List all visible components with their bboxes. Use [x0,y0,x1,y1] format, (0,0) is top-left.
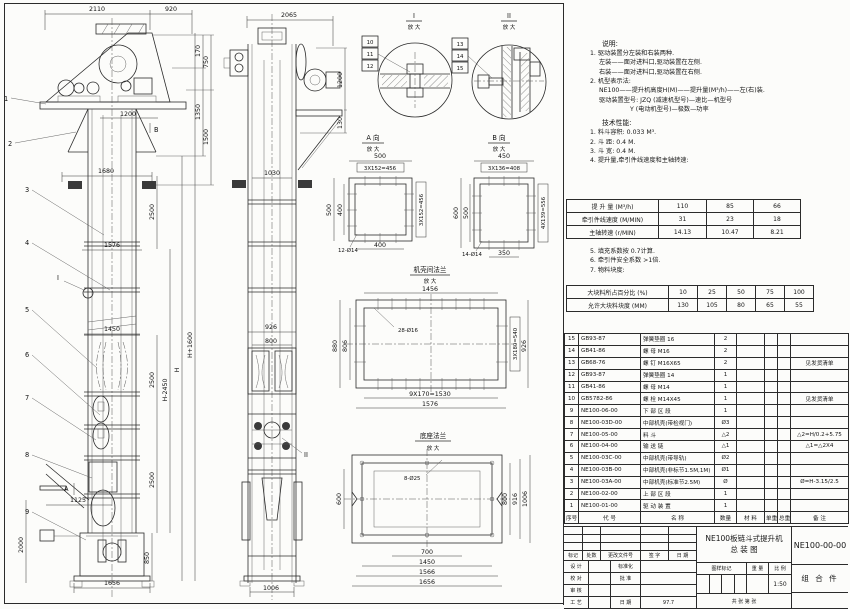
bom-table: 15GB93-87弹簧垫圈 162 14GB41-86螺 母 M162 13GB… [564,333,849,524]
note-line: NE100——提升机高度H(M)——提升量(M³/h)——左(右)装. [590,86,842,95]
dim-750: 750 [203,56,210,68]
front-view: 2110 920 [4,6,214,598]
detail-ii-balloon-15: 15 [457,66,464,72]
bom-row: 2NE100-02-00上 部 区 段1 [565,488,849,500]
speed-table: 提 升 量 (M³/h) 110 85 66 牵引件线速度 (M/MIN) 31… [566,199,801,239]
dim-920: 920 [165,6,177,13]
balloon-4: 4 [25,239,29,247]
dim-1030: 1030 [264,170,280,177]
dim-130: 130 [337,117,344,129]
detail-ii-title: II [507,12,511,20]
lump-cell: 65 [756,299,785,312]
view-b-holes: 14-Ø14 [462,251,482,258]
tb-rev-label: 更改文件号 [600,551,640,561]
note-line: 1. 驱动装置分左装和右装两种. [590,49,842,58]
view-b: B 向 放 大 450 3X136=408 600 500 4X139=556 … [453,133,548,258]
bom-row: 14GB41-86螺 母 M162 [565,345,849,357]
balloon-7: 7 [25,394,29,402]
base-flange-dim-b1: 700 [421,549,433,556]
casing-flange-dim-right2: 926 [521,340,528,352]
product-title-line2: 总 装 图 [730,545,757,555]
speed-cell: 8.21 [754,226,801,239]
section-marker-b: B [154,126,159,134]
speed-row-label: 主轴转速 (r/MIN) [567,226,659,239]
dim-1125: 1125 [70,497,86,504]
balloon-8: 8 [25,451,29,459]
tb-role-val [640,585,696,597]
speed-cell: 14.13 [659,226,707,239]
view-a-dim-left: 500 [326,204,333,216]
base-flange-dim-right2: 916 [512,493,519,505]
tb-scale-value: 1:50 [768,575,791,594]
dim-1200-side: 1200 [337,72,344,88]
detail-i-sub: 放 大 [408,23,421,31]
view-a-dim-bottom: 400 [374,242,386,249]
speed-cell: 18 [754,213,801,226]
view-a-dim-left2: 400 [337,204,344,216]
detail-ii-balloon-13: 13 [457,42,464,48]
tech-item: 6. 牵引件安全系数 >1倍. [590,256,842,265]
dim-1500: 1500 [203,129,210,145]
bom-row: 7NE100-05-00料 斗△2△2=H/0.2+5.75 [565,429,849,441]
lump-cell: 80 [727,299,756,312]
tb-stamp-label: 重 量 [746,563,768,575]
tb-role-val [640,573,696,585]
right-panel: 说明: 1. 驱动装置分左装和右装两种. 左装——面对进料口,驱动装置在左侧. … [563,3,847,605]
speed-cell: 31 [659,213,707,226]
dim-1350: 1350 [195,104,202,120]
tb-role-val: 97.7 [640,597,696,609]
bom-row: 11GB41-86螺 母 M141 [565,381,849,393]
detail-i-ref: I [57,274,59,282]
lump-cell: 25 [698,286,727,299]
base-flange-dim-right1: 800 [502,493,509,505]
bom-row: 13GB68-76螺 钉 M16X652见发货清单 [565,357,849,369]
detail-i-view: I 放 大 10 11 12 [362,12,452,117]
tb-part-category: 组 合 件 [791,565,848,593]
lump-size-table: 大块料所占百分比 (%) 10 25 50 75 100 允许大块料块度 (MM… [566,285,814,312]
tech-item: 2. 斗 距: 0.4 M. [590,138,842,147]
detail-i-title: I [413,12,415,20]
base-flange-dim-left: 600 [336,493,343,505]
base-flange-dim-b4: 1656 [419,579,435,586]
lump-cell: 130 [669,299,698,312]
base-flange-holes: 8-Ø25 [404,475,420,482]
dim-2500-c: 2500 [149,472,156,488]
speed-cell: 10.47 [707,226,754,239]
base-flange-sub: 放 大 [427,444,440,452]
note-line: 2. 机型表示法: [590,77,842,86]
dim-1680: 1680 [98,168,114,175]
view-b-dim-right: 4X139=556 [541,196,547,229]
tb-sheet-info: 共 张 第 张 [696,594,791,609]
casing-flange-dim-left2: 806 [342,340,349,352]
view-b-dim-left: 600 [453,207,460,219]
drawing-area: 2110 920 [0,0,563,609]
dim-926: 926 [265,324,277,331]
bom-row: 15GB93-87弹簧垫圈 162 [565,334,849,346]
tb-drawing-number: NE100-00-00 [791,527,848,565]
speed-cell: 23 [707,213,754,226]
note-line: 驱动装置型号: JZQ (减速机型号)—速比—机型号 [590,96,842,105]
casing-flange-dim-right: 3X180=540 [513,327,519,360]
view-a-holes: 12-Ø14 [338,247,358,254]
balloon-2: 2 [8,140,12,148]
bom-row: 10GB5782-86螺 栓 M14X451见发货清单 [565,393,849,405]
tb-role2: 标准化 [610,561,640,573]
bom-row: 8NE100-03D-00中部机壳(带检视门)Ø3 [565,417,849,429]
detail-i-balloon-11: 11 [367,52,374,58]
detail-i-balloon-10: 10 [367,40,374,46]
tb-title: NE100板链斗式提升机 总 装 图 [696,527,791,563]
view-a-title: A 向 [366,133,379,142]
casing-flange-dim-bottom2: 1576 [422,401,438,408]
tech-item: 7. 物料块度: [590,266,842,275]
tb-role-val [640,561,696,573]
tb-rev-label: 处数 [582,551,600,561]
base-flange-title: 底座法兰 [420,431,447,440]
casing-flange-dim-left: 880 [332,340,339,352]
bom-row: 9NE100-06-00下 部 区 段1 [565,405,849,417]
view-b-dim-top: 450 [498,153,510,160]
dim-h-minus: H-2450 [162,378,169,401]
tech-item: 3. 斗 宽: 0.4 M. [590,147,842,156]
dim-170: 170 [195,45,202,57]
tech-item: 1. 料斗容积: 0.033 M³. [590,128,842,137]
view-b-dim-top2: 3X136=408 [488,166,521,172]
balloon-3: 3 [25,186,29,194]
detail-ii-balloon-14: 14 [457,54,464,60]
notes-block-2: 5. 填充系数按 0.7计算. 6. 牵引件安全系数 >1倍. 7. 物料块度: [590,247,842,275]
casing-flange-title: 机壳间法兰 [414,265,447,274]
dim-2500-a: 2500 [149,204,156,220]
dim-800: 800 [265,338,277,345]
note-line: 右装——面对进料口,驱动装置在右侧. [590,68,842,77]
tb-stamp-label: 比 例 [768,563,791,575]
view-b-sub: 放 大 [493,145,506,153]
notes-block: 说明: 1. 驱动装置分左装和右装两种. 左装——面对进料口,驱动装置在左侧. … [590,39,842,166]
view-b-dim-left2: 500 [463,207,470,219]
tb-role: 审 核 [564,585,588,597]
base-flange-view: 底座法兰 放 大 8-Ø25 600 800 916 1006 700 [336,431,530,586]
tb-role2: 日 期 [610,597,640,609]
dim-h-plus: H+1600 [187,332,194,358]
tb-role2: 批 准 [610,573,640,585]
dim-2000: 2000 [18,537,25,553]
bom-row: 3NE100-03A-00中部机壳(标准节2.5M)ØØ=H-3.15/2.5 [565,476,849,488]
casing-flange-dim-top: 1456 [422,286,438,293]
view-b-dim-bottom: 350 [498,250,510,257]
lump-row-label: 允许大块料块度 (MM) [567,299,669,312]
side-view: 2065 1200 130 10 [224,12,347,600]
tb-role: 工 艺 [564,597,588,609]
lump-cell: 100 [785,286,814,299]
casing-flange-dim-bottom: 9X170=1530 [409,391,451,398]
base-flange-dim-b3: 1566 [419,569,435,576]
note-line: Y (电动机型号)—极数—功率 [590,105,842,114]
bom-row: 6NE100-04-00输 送 链△1△1=△2X4 [565,441,849,453]
tb-rev-label: 标记 [564,551,582,561]
dim-1006: 1006 [263,585,279,592]
lump-cell: 50 [727,286,756,299]
tech-item: 4. 提升量,牵引件线速度和主轴转速: [590,156,842,165]
detail-i-balloon-12: 12 [367,64,374,70]
tb-role: 设 计 [564,561,588,573]
title-block: 标记 处数 更改文件号 签 字 日 期 设 计 标准化 校 对 批 准 审 核 … [564,526,848,608]
dim-h: H [174,367,181,372]
view-a-dim-top2: 3X152=456 [364,166,397,172]
dim-1576: 1576 [104,242,120,249]
dim-2110: 2110 [89,6,105,13]
speed-cell: 66 [754,200,801,213]
base-flange-dim-right3: 1006 [522,491,529,507]
bom-row: 12GB93-87弹簧垫圈 141 [565,369,849,381]
detail-ii-view: II 放 大 13 14 15 [452,12,546,119]
bom-row: 4NE100-03B-00中部机壳(非标节1.5M,1M)Ø1 [565,464,849,476]
view-a-sub: 放 大 [367,145,380,153]
balloon-6: 6 [25,351,29,359]
lump-cell: 55 [785,299,814,312]
tech-item: 5. 填充系数按 0.7计算. [590,247,842,256]
lump-cell: 75 [756,286,785,299]
speed-row-label: 牵引件线速度 (M/MIN) [567,213,659,226]
view-b-title: B 向 [492,133,505,142]
base-flange-dim-b2: 1450 [419,559,435,566]
dim-1656-front: 1656 [104,580,120,587]
bom-row: 1NE100-01-00驱 动 装 置1 [565,500,849,512]
dim-2500-b: 2500 [149,372,156,388]
view-a-dim-top: 500 [374,153,386,160]
bom-row: 5NE100-03C-00中部机壳(带导轨)Ø2 [565,452,849,464]
lump-row-label: 大块料所占百分比 (%) [567,286,669,299]
tb-rev-label: 日 期 [668,551,696,561]
speed-cell: 85 [707,200,754,213]
casing-flange-holes: 28-Ø16 [398,327,418,334]
tb-role: 校 对 [564,573,588,585]
casing-flange-view: 机壳间法兰 放 大 1456 28-Ø16 806 880 3X180=540 … [332,265,528,408]
note-line: 左装——面对进料口,驱动装置在左侧. [590,58,842,67]
product-title-line1: NE100板链斗式提升机 [705,534,782,544]
balloon-9: 9 [25,508,29,516]
speed-cell: 110 [659,200,707,213]
speed-row-label: 提 升 量 (M³/h) [567,200,659,213]
lump-cell: 10 [669,286,698,299]
view-a-dim-right: 3X152=456 [419,193,425,226]
view-a: A 向 放 大 500 3X152=456 500 400 3X152=456 … [326,133,426,254]
tb-rev-label: 签 字 [640,551,668,561]
dim-2065: 2065 [281,12,297,19]
dim-1450: 1450 [104,326,120,333]
tb-role2 [610,585,640,597]
tech-title: 技术性能: [602,118,842,128]
balloon-5: 5 [25,306,29,314]
dim-850: 850 [144,552,151,564]
balloon-1: 1 [4,95,8,103]
bom-header-row: 序号代 号名 称数量材 料单重总重备 注 [565,512,849,524]
drawing-sheet: 2110 920 [0,0,850,609]
tb-stamp-label: 图样标记 [696,563,746,575]
detail-ii-sub: 放 大 [503,23,516,31]
dim-1200-front: 1200 [120,111,136,118]
detail-ii-ref: II [304,451,308,459]
casing-flange-sub: 放 大 [424,277,437,285]
notes-title: 说明: [602,39,842,49]
section-marker-a: A [64,485,69,493]
lump-cell: 105 [698,299,727,312]
